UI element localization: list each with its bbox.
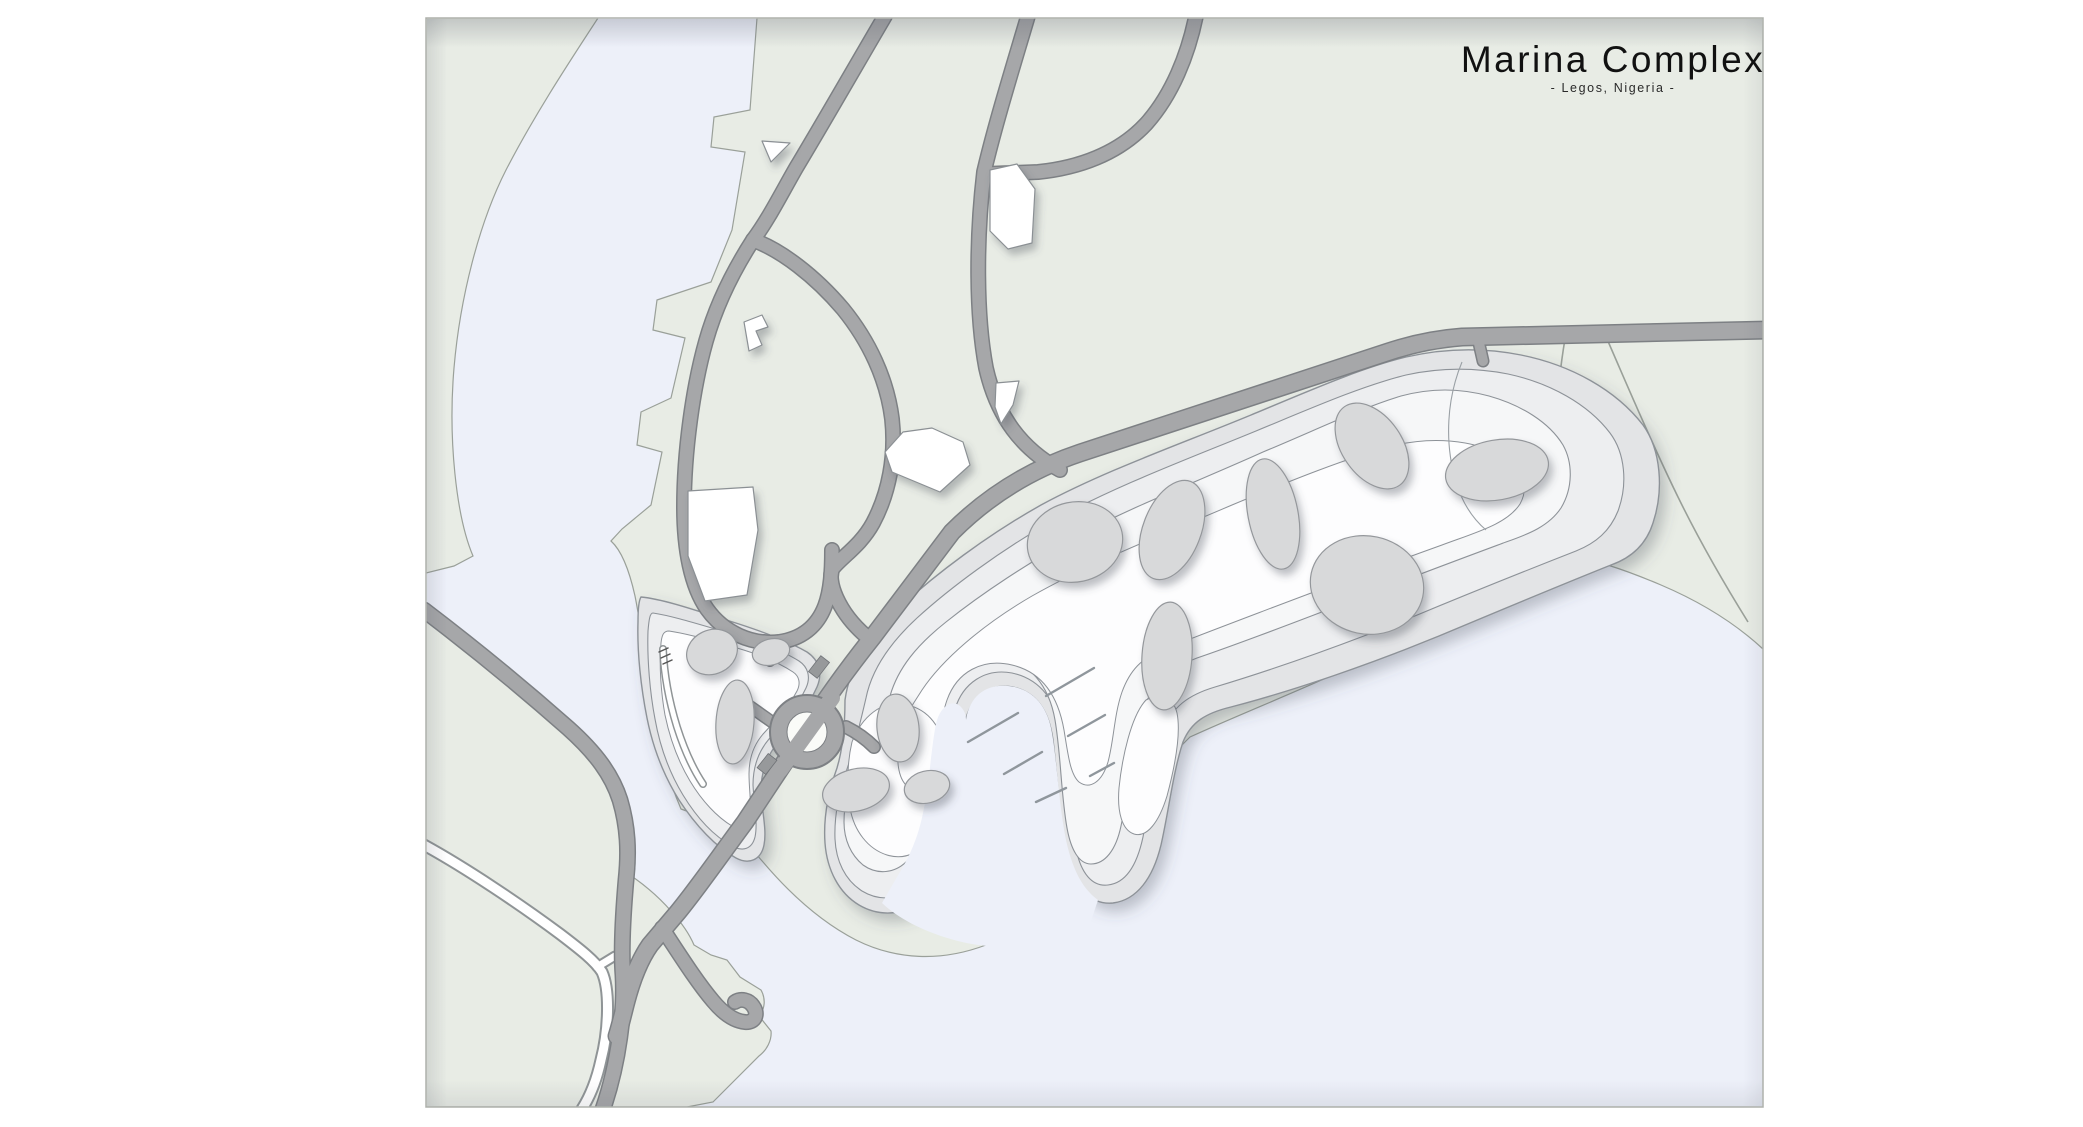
plaza-access-stub: [1478, 339, 1483, 361]
site-plan-map: Marina Complex - Legos, Nigeria -: [0, 0, 2083, 1127]
map-title: Marina Complex: [1461, 39, 1765, 80]
map-subtitle: - Legos, Nigeria -: [1551, 81, 1676, 95]
page: Marina Complex - Legos, Nigeria -: [0, 0, 2083, 1127]
building-loop: [688, 487, 758, 601]
roundabout: [770, 695, 844, 770]
